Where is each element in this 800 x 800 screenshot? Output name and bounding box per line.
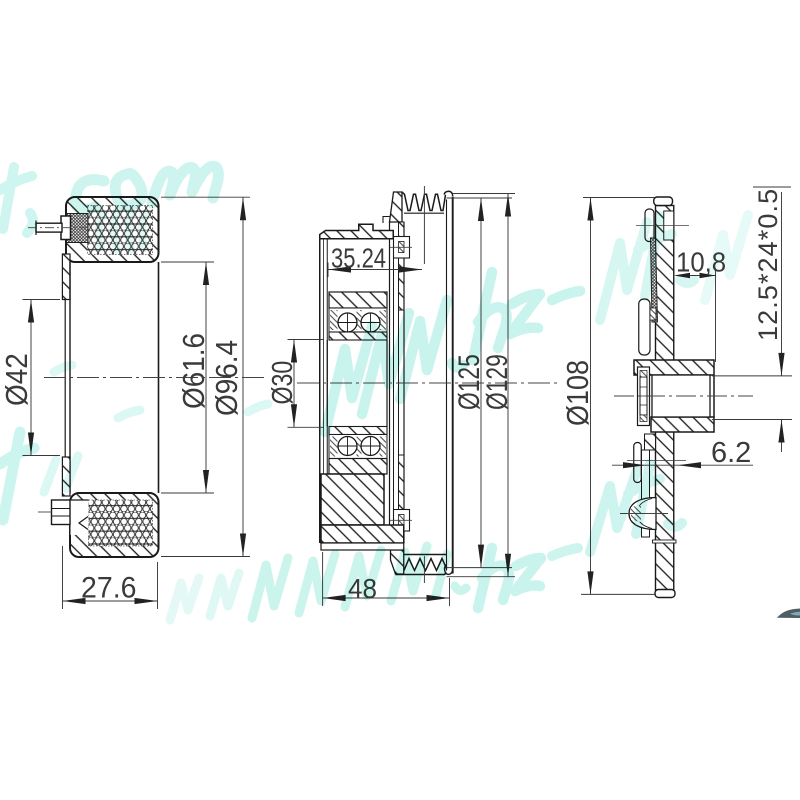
svg-text:6.2: 6.2 <box>711 437 751 469</box>
svg-text:Ø30: Ø30 <box>265 361 298 405</box>
svg-text:Ø61.6: Ø61.6 <box>177 333 212 409</box>
svg-text:Ø42: Ø42 <box>0 353 34 406</box>
svg-text:Ø108: Ø108 <box>561 360 595 426</box>
svg-text:27.6: 27.6 <box>81 572 136 605</box>
svg-text:35.24: 35.24 <box>331 243 386 274</box>
svg-text:12.5*24*0.5: 12.5*24*0.5 <box>753 188 783 341</box>
svg-text:Ø129: Ø129 <box>480 354 514 410</box>
svg-text:Ø96.4: Ø96.4 <box>210 340 245 416</box>
